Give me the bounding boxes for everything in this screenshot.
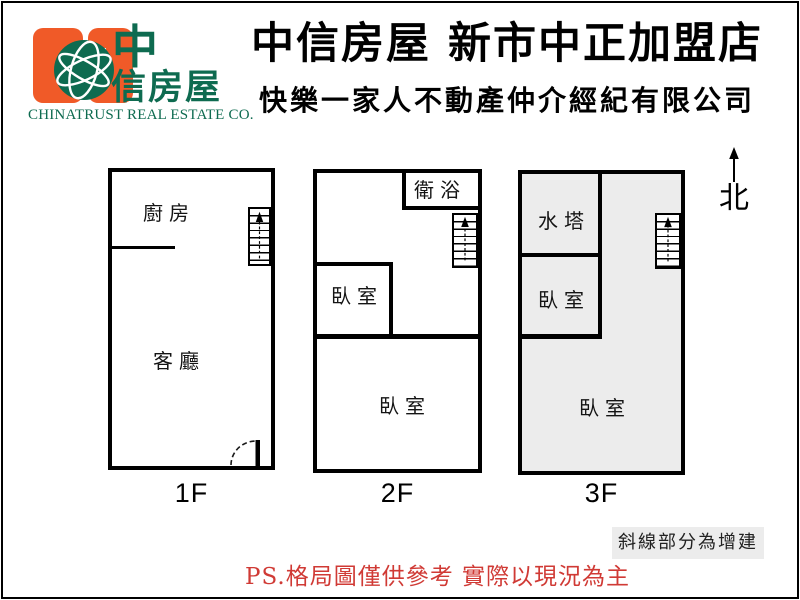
stairs-up-arrow-icon <box>250 209 269 264</box>
room-label-bedroom-3f-main: 臥室 <box>579 398 631 418</box>
floor-caption-1f: 1F <box>108 478 275 509</box>
wall <box>112 246 175 249</box>
stairs-up-arrow-icon <box>657 215 679 267</box>
door-swing-icon <box>228 438 266 466</box>
room-label-bathroom: 衛浴 <box>414 180 466 200</box>
floorplan-1f: 廚房 客廳 <box>108 168 275 470</box>
room-label-living-room: 客廳 <box>153 351 205 371</box>
store-title: 中信房屋 新市中正加盟店 <box>232 20 782 69</box>
globe-icon <box>54 40 114 100</box>
room-label-bedroom-3f-small: 臥室 <box>538 290 590 310</box>
wall <box>389 262 393 334</box>
wall <box>522 334 602 339</box>
room-label-bedroom-2f-small: 臥室 <box>331 286 383 306</box>
staircase <box>452 213 478 268</box>
north-arrow-icon <box>726 146 742 184</box>
room-label-water-tank: 水塔 <box>538 211 590 231</box>
room-label-kitchen: 廚房 <box>143 203 195 223</box>
north-label: 北 <box>714 184 754 214</box>
staircase <box>248 207 271 266</box>
wall <box>402 173 406 206</box>
wall <box>522 253 602 257</box>
staircase <box>655 213 681 269</box>
wall <box>402 206 478 210</box>
footer-disclaimer: PS.格局圖僅供參考 實際以現況為主 <box>240 557 635 591</box>
compass: 北 <box>714 146 754 214</box>
company-subtitle: 快樂一家人不動產仲介經紀有限公司 <box>232 79 782 119</box>
wall <box>317 262 393 266</box>
brand-name-line2: 信房屋 <box>111 70 222 107</box>
wall <box>317 334 478 339</box>
room-label-bedroom-2f-main: 臥室 <box>379 396 431 416</box>
floor-caption-2f: 2F <box>313 478 482 509</box>
floorplan-flyer: 中 信房屋 CHINATRUST REAL ESTATE CO. 中信房屋 新市… <box>0 0 800 600</box>
floorplan-2f: 衛浴 臥室 臥室 <box>313 169 482 473</box>
floorplan-3f: 水塔 臥室 臥室 <box>518 170 685 475</box>
stairs-up-arrow-icon <box>454 215 476 266</box>
legend-note-addition: 斜線部分為增建 <box>612 527 764 559</box>
brand-name-line1: 中 <box>112 22 158 73</box>
floor-caption-3f: 3F <box>518 478 685 509</box>
brand-name-english: CHINATRUST REAL ESTATE CO. <box>28 107 254 124</box>
